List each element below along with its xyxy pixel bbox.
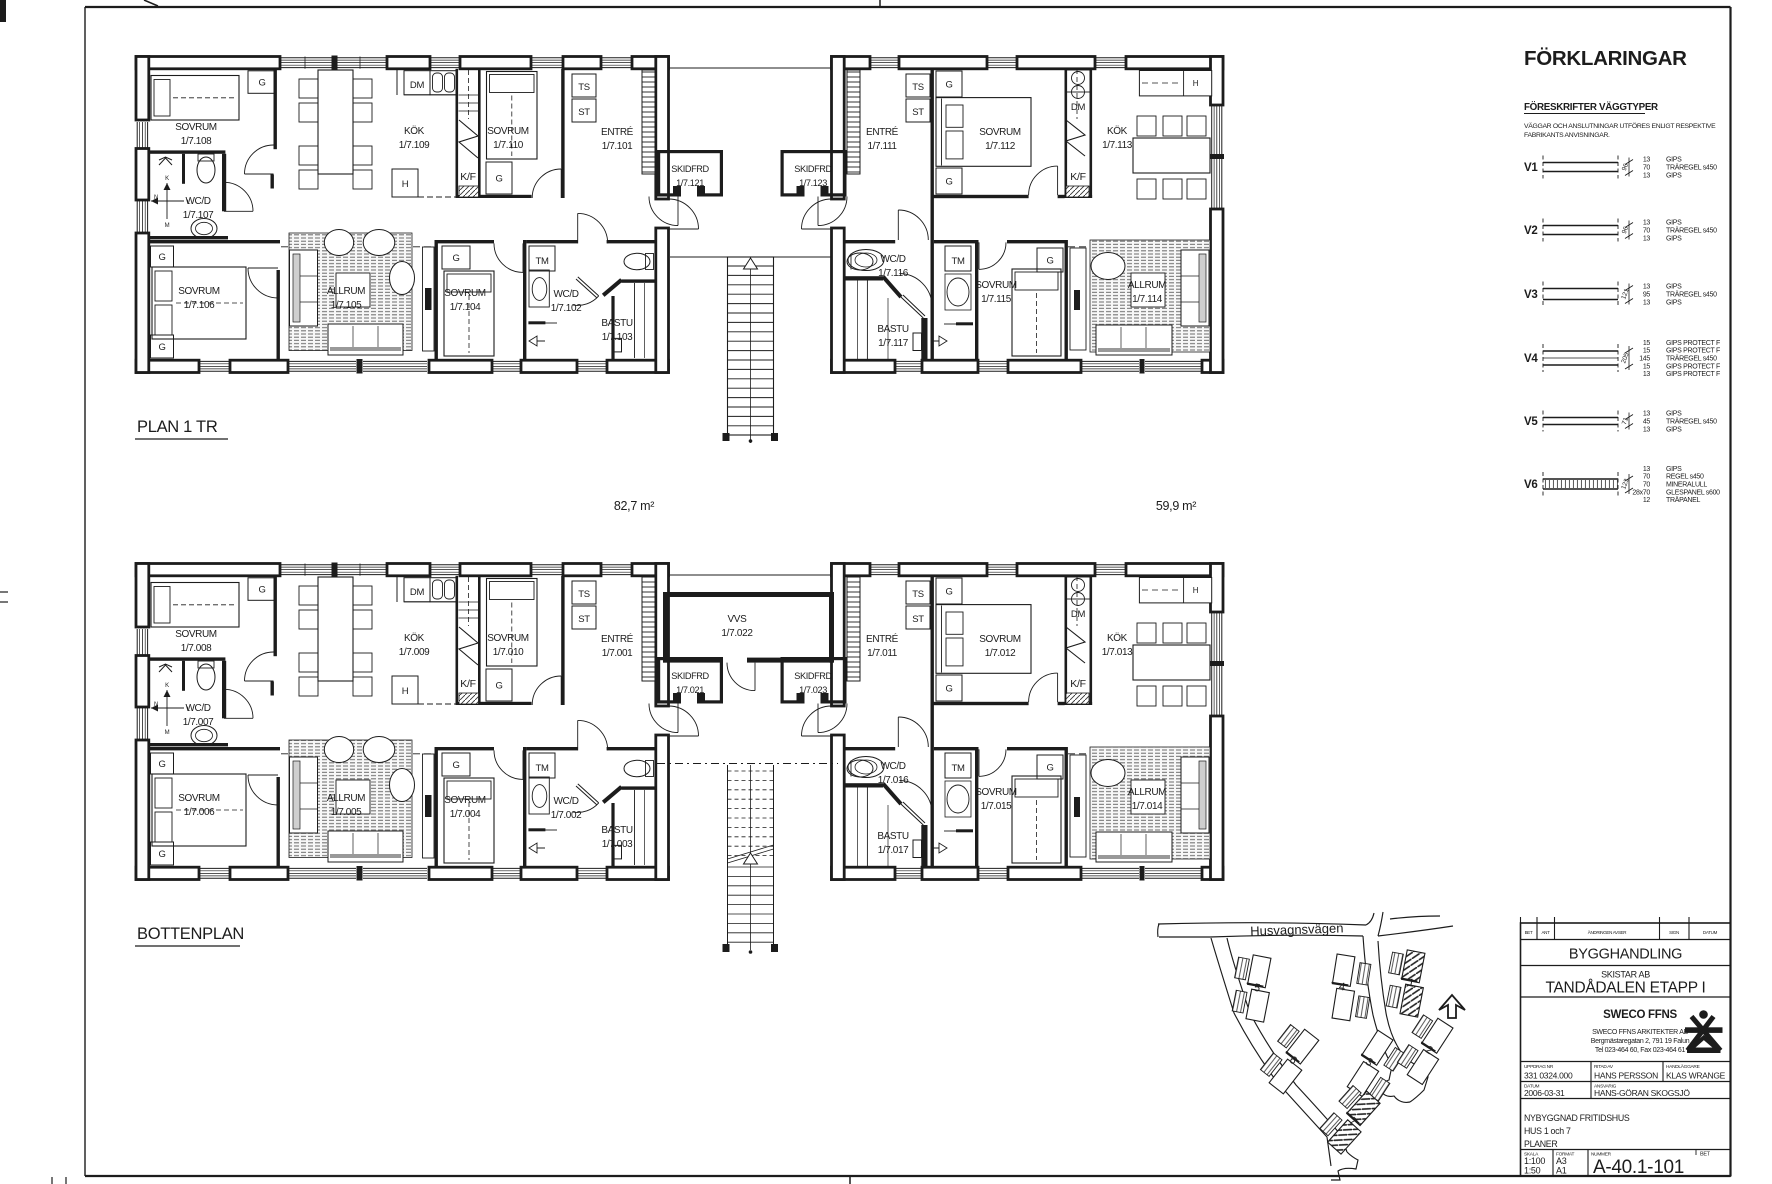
svg-text:1/7.102: 1/7.102 bbox=[551, 303, 582, 314]
svg-text:1/7.023: 1/7.023 bbox=[799, 685, 827, 695]
svg-text:BET: BET bbox=[1525, 930, 1533, 935]
svg-text:SWECO FFNS: SWECO FFNS bbox=[1603, 1009, 1677, 1021]
svg-text:KLAS WRANGE: KLAS WRANGE bbox=[1666, 1071, 1726, 1081]
svg-text:M: M bbox=[165, 223, 170, 229]
svg-text:TS: TS bbox=[578, 589, 590, 600]
svg-text:70: 70 bbox=[1643, 482, 1651, 489]
svg-text:13: 13 bbox=[1643, 299, 1651, 306]
svg-text:1/7.101: 1/7.101 bbox=[602, 141, 633, 152]
svg-text:13: 13 bbox=[1643, 284, 1651, 291]
svg-text:A1: A1 bbox=[1556, 1166, 1567, 1176]
svg-text:1/7.015: 1/7.015 bbox=[981, 801, 1012, 812]
svg-text:H: H bbox=[1193, 79, 1199, 88]
svg-text:VÄGGAR OCH ANSLUTNINGAR UTFÖRE: VÄGGAR OCH ANSLUTNINGAR UTFÖRES ENLIGT R… bbox=[1524, 122, 1716, 130]
svg-text:N: N bbox=[154, 702, 158, 708]
svg-text:Tel 023-464 60, Fax 023-464 61: Tel 023-464 60, Fax 023-464 61 bbox=[1595, 1047, 1686, 1054]
svg-text:G: G bbox=[495, 174, 502, 185]
svg-text:TRÄREGEL s450: TRÄREGEL s450 bbox=[1666, 291, 1717, 299]
svg-text:1/7.017: 1/7.017 bbox=[878, 845, 909, 856]
svg-text:15: 15 bbox=[1643, 340, 1651, 347]
svg-text:70: 70 bbox=[1643, 228, 1651, 235]
svg-text:TM: TM bbox=[535, 256, 549, 267]
svg-text:M: M bbox=[165, 730, 170, 736]
svg-text:HANDLÄGGARE: HANDLÄGGARE bbox=[1666, 1063, 1700, 1070]
svg-text:WC/D: WC/D bbox=[553, 289, 578, 300]
svg-text:1:100: 1:100 bbox=[1524, 1156, 1545, 1166]
svg-text:BYGGHANDLING: BYGGHANDLING bbox=[1569, 947, 1682, 963]
svg-text:13: 13 bbox=[1643, 426, 1651, 433]
svg-text:KÖK: KÖK bbox=[1107, 632, 1128, 644]
svg-text:1/7.117: 1/7.117 bbox=[878, 338, 909, 349]
svg-text:SOVRUM: SOVRUM bbox=[444, 288, 486, 299]
svg-text:1/7.105: 1/7.105 bbox=[331, 300, 362, 311]
svg-text:1/7.112: 1/7.112 bbox=[985, 141, 1016, 152]
svg-text:SOVRUM: SOVRUM bbox=[487, 126, 529, 137]
svg-text:SIGN: SIGN bbox=[1669, 930, 1679, 935]
svg-text:K/F: K/F bbox=[1070, 171, 1085, 183]
svg-text:GIPS: GIPS bbox=[1666, 235, 1682, 242]
svg-text:70: 70 bbox=[1643, 474, 1651, 481]
svg-text:G: G bbox=[158, 342, 165, 353]
svg-text:1/7.111: 1/7.111 bbox=[867, 141, 897, 152]
svg-text:45: 45 bbox=[1643, 419, 1651, 426]
svg-text:1/7.115: 1/7.115 bbox=[981, 294, 1012, 305]
svg-text:ALLRUM: ALLRUM bbox=[1128, 787, 1166, 798]
svg-text:G: G bbox=[945, 177, 952, 188]
svg-text:SOVRUM: SOVRUM bbox=[175, 122, 217, 133]
svg-text:SOVRUM: SOVRUM bbox=[444, 795, 486, 806]
svg-text:GIPS PROTECT F: GIPS PROTECT F bbox=[1666, 363, 1720, 370]
svg-text:DATUM: DATUM bbox=[1703, 930, 1718, 935]
svg-text:DM: DM bbox=[410, 587, 425, 598]
svg-text:KÖK: KÖK bbox=[1107, 125, 1128, 137]
svg-text:TM: TM bbox=[535, 763, 549, 774]
svg-text:ST: ST bbox=[912, 107, 924, 118]
svg-text:V6: V6 bbox=[1524, 479, 1537, 491]
svg-text:N: N bbox=[154, 195, 158, 201]
svg-text:1/7.121: 1/7.121 bbox=[676, 178, 704, 188]
svg-text:GIPS PROTECT F: GIPS PROTECT F bbox=[1666, 371, 1720, 378]
svg-text:1/7.003: 1/7.003 bbox=[602, 839, 633, 850]
svg-text:12: 12 bbox=[1643, 497, 1651, 504]
svg-text:1/7.108: 1/7.108 bbox=[181, 136, 212, 147]
svg-text:1/7.009: 1/7.009 bbox=[399, 647, 430, 658]
svg-text:ALLRUM: ALLRUM bbox=[327, 286, 365, 297]
svg-text:TM: TM bbox=[951, 763, 965, 774]
svg-text:GIPS: GIPS bbox=[1666, 411, 1682, 418]
svg-text:1/7.109: 1/7.109 bbox=[399, 140, 430, 151]
svg-text:1/7.104: 1/7.104 bbox=[450, 302, 481, 313]
svg-text:ÄNDRINGEN AVSER: ÄNDRINGEN AVSER bbox=[1588, 929, 1627, 935]
svg-text:SOVRUM: SOVRUM bbox=[178, 286, 220, 297]
svg-text:G: G bbox=[945, 587, 952, 598]
svg-text:BASTU: BASTU bbox=[601, 825, 633, 836]
svg-text:V3: V3 bbox=[1524, 289, 1537, 301]
svg-text:MINERALULL: MINERALULL bbox=[1666, 482, 1707, 489]
svg-text:K: K bbox=[165, 683, 169, 689]
svg-text:13: 13 bbox=[1643, 235, 1651, 242]
svg-text:13: 13 bbox=[1643, 220, 1651, 227]
svg-text:TS: TS bbox=[912, 82, 924, 93]
svg-text:1/7.011: 1/7.011 bbox=[867, 648, 898, 659]
svg-text:V5: V5 bbox=[1524, 416, 1538, 428]
svg-text:SOVRUM: SOVRUM bbox=[175, 629, 217, 640]
svg-text:1/7.005: 1/7.005 bbox=[331, 807, 362, 818]
svg-text:SOVRUM: SOVRUM bbox=[979, 634, 1021, 645]
svg-text:UPPDRAG NR: UPPDRAG NR bbox=[1524, 1064, 1554, 1070]
svg-text:HUS 1 och 7: HUS 1 och 7 bbox=[1524, 1126, 1571, 1136]
svg-text:1/7.116: 1/7.116 bbox=[878, 268, 909, 279]
svg-text:A3: A3 bbox=[1556, 1156, 1567, 1166]
svg-text:1/7.004: 1/7.004 bbox=[450, 809, 481, 820]
svg-text:WC/D: WC/D bbox=[880, 254, 905, 265]
svg-text:SOVRUM: SOVRUM bbox=[487, 633, 529, 644]
svg-text:1/7.013: 1/7.013 bbox=[1102, 647, 1133, 658]
svg-text:Bergmästaregatan 2, 791 19 Fal: Bergmästaregatan 2, 791 19 Falun bbox=[1591, 1038, 1690, 1045]
svg-text:BASTU: BASTU bbox=[877, 324, 909, 335]
svg-text:DM: DM bbox=[1071, 609, 1086, 620]
svg-text:ST: ST bbox=[578, 614, 590, 625]
svg-text:TS: TS bbox=[912, 589, 924, 600]
svg-text:GIPS: GIPS bbox=[1666, 220, 1682, 227]
svg-text:GIPS: GIPS bbox=[1666, 466, 1682, 473]
svg-text:BOTTENPLAN: BOTTENPLAN bbox=[137, 925, 244, 943]
svg-text:G: G bbox=[158, 849, 165, 860]
svg-text:1/7.103: 1/7.103 bbox=[602, 332, 633, 343]
svg-text:WC/D: WC/D bbox=[553, 796, 578, 807]
svg-text:1/7.123: 1/7.123 bbox=[799, 178, 827, 188]
svg-text:TM: TM bbox=[951, 256, 965, 267]
svg-text:KÖK: KÖK bbox=[404, 125, 425, 137]
svg-text:RITAD AV: RITAD AV bbox=[1594, 1064, 1614, 1070]
svg-text:1/7.114: 1/7.114 bbox=[1132, 294, 1163, 305]
svg-text:28x70: 28x70 bbox=[1632, 489, 1650, 496]
svg-text:SWECO FFNS ARKITEKTER AB: SWECO FFNS ARKITEKTER AB bbox=[1592, 1029, 1689, 1036]
svg-text:G: G bbox=[945, 80, 952, 91]
svg-text:GIPS: GIPS bbox=[1666, 299, 1682, 306]
svg-text:BASTU: BASTU bbox=[601, 318, 633, 329]
svg-text:GIPS PROTECT F: GIPS PROTECT F bbox=[1666, 340, 1720, 347]
svg-text:SKIDFRD: SKIDFRD bbox=[671, 671, 709, 681]
svg-text:82,7 m²: 82,7 m² bbox=[614, 499, 654, 513]
svg-text:1/7.010: 1/7.010 bbox=[493, 647, 524, 658]
svg-text:1/7.106: 1/7.106 bbox=[184, 300, 215, 311]
svg-text:13: 13 bbox=[1643, 466, 1651, 473]
svg-text:BET: BET bbox=[1700, 1152, 1711, 1158]
svg-text:ST: ST bbox=[578, 107, 590, 118]
svg-text:1/7.012: 1/7.012 bbox=[985, 648, 1016, 659]
svg-text:145: 145 bbox=[1639, 356, 1650, 363]
svg-text:15: 15 bbox=[1643, 348, 1651, 355]
svg-text:G: G bbox=[258, 585, 265, 596]
svg-text:TRÄREGEL s450: TRÄREGEL s450 bbox=[1666, 227, 1717, 235]
svg-text:59,9 m²: 59,9 m² bbox=[1156, 499, 1196, 513]
svg-text:G: G bbox=[158, 759, 165, 770]
svg-text:2006-03-31: 2006-03-31 bbox=[1524, 1088, 1565, 1098]
svg-text:FÖRESKRIFTER VÄGGTYPER: FÖRESKRIFTER VÄGGTYPER bbox=[1524, 102, 1658, 113]
svg-text:HANS PERSSON: HANS PERSSON bbox=[1594, 1071, 1658, 1081]
svg-text:13: 13 bbox=[1643, 172, 1651, 179]
svg-text:ALLRUM: ALLRUM bbox=[1128, 280, 1166, 291]
svg-text:1:50: 1:50 bbox=[1524, 1166, 1541, 1176]
svg-text:NYBYGGNAD FRITIDSHUS: NYBYGGNAD FRITIDSHUS bbox=[1524, 1113, 1630, 1123]
svg-text:G: G bbox=[258, 78, 265, 89]
svg-text:1/7.001: 1/7.001 bbox=[602, 648, 633, 659]
svg-text:TRÄPANEL: TRÄPANEL bbox=[1666, 496, 1700, 504]
svg-text:TRÄREGEL s450: TRÄREGEL s450 bbox=[1666, 355, 1717, 363]
svg-text:1/7.002: 1/7.002 bbox=[551, 810, 582, 821]
svg-text:PLANER: PLANER bbox=[1524, 1139, 1557, 1149]
svg-text:ST: ST bbox=[912, 614, 924, 625]
svg-text:A-40.1-101: A-40.1-101 bbox=[1593, 1157, 1684, 1178]
svg-text:13: 13 bbox=[1643, 411, 1651, 418]
svg-text:1/7.006: 1/7.006 bbox=[184, 807, 215, 818]
svg-text:GIPS: GIPS bbox=[1666, 284, 1682, 291]
svg-text:G: G bbox=[452, 253, 459, 264]
svg-text:K: K bbox=[165, 176, 169, 182]
svg-text:FÖRKLARINGAR: FÖRKLARINGAR bbox=[1524, 47, 1687, 70]
svg-text:DM: DM bbox=[1071, 102, 1086, 113]
svg-text:1/7.016: 1/7.016 bbox=[878, 775, 909, 786]
svg-text:V2: V2 bbox=[1524, 225, 1537, 237]
svg-text:331 0324.000: 331 0324.000 bbox=[1524, 1071, 1573, 1081]
svg-text:TRÄREGEL s450: TRÄREGEL s450 bbox=[1666, 164, 1717, 172]
svg-text:GIPS: GIPS bbox=[1666, 157, 1682, 164]
svg-text:REGEL s450: REGEL s450 bbox=[1666, 474, 1704, 481]
svg-text:ENTRÉ: ENTRÉ bbox=[601, 632, 634, 645]
svg-text:GIPS: GIPS bbox=[1666, 426, 1682, 433]
svg-text:13: 13 bbox=[1643, 371, 1651, 378]
svg-text:SKIDFRD: SKIDFRD bbox=[671, 164, 709, 174]
svg-text:V1: V1 bbox=[1524, 162, 1538, 174]
svg-text:1/7.014: 1/7.014 bbox=[1132, 801, 1163, 812]
svg-text:DM: DM bbox=[410, 80, 425, 91]
svg-text:G: G bbox=[1046, 763, 1053, 774]
svg-text:1/7.021: 1/7.021 bbox=[676, 685, 704, 695]
svg-text:G: G bbox=[158, 252, 165, 263]
svg-text:95: 95 bbox=[1643, 292, 1651, 299]
svg-text:1/7.007: 1/7.007 bbox=[183, 717, 214, 728]
svg-text:TRÄREGEL s450: TRÄREGEL s450 bbox=[1666, 418, 1717, 426]
svg-text:H: H bbox=[402, 686, 409, 697]
svg-text:SKIDFRD: SKIDFRD bbox=[794, 164, 832, 174]
svg-text:SKIDFRD: SKIDFRD bbox=[794, 671, 832, 681]
svg-text:ANT: ANT bbox=[1541, 930, 1550, 935]
svg-text:G: G bbox=[1046, 256, 1053, 267]
svg-text:G: G bbox=[945, 684, 952, 695]
svg-text:1/7.113: 1/7.113 bbox=[1102, 140, 1133, 151]
svg-text:SOVRUM: SOVRUM bbox=[979, 127, 1021, 138]
svg-text:HANS-GÖRAN SKOGSJÖ: HANS-GÖRAN SKOGSJÖ bbox=[1594, 1088, 1690, 1098]
svg-text:H: H bbox=[1193, 586, 1199, 595]
svg-text:K/F: K/F bbox=[460, 171, 475, 183]
svg-text:1/7.110: 1/7.110 bbox=[493, 140, 524, 151]
svg-text:ENTRÉ: ENTRÉ bbox=[866, 632, 899, 645]
svg-text:H: H bbox=[402, 179, 409, 190]
svg-text:G: G bbox=[452, 760, 459, 771]
svg-text:SOVRUM: SOVRUM bbox=[975, 280, 1017, 291]
svg-text:BASTU: BASTU bbox=[877, 831, 909, 842]
svg-text:G: G bbox=[495, 681, 502, 692]
svg-text:TANDÅDALEN ETAPP I: TANDÅDALEN ETAPP I bbox=[1546, 980, 1706, 997]
svg-text:KÖK: KÖK bbox=[404, 632, 425, 644]
svg-text:ENTRÉ: ENTRÉ bbox=[866, 125, 899, 138]
svg-text:ENTRÉ: ENTRÉ bbox=[601, 125, 634, 138]
svg-text:SOVRUM: SOVRUM bbox=[975, 787, 1017, 798]
svg-text:13: 13 bbox=[1643, 157, 1651, 164]
svg-text:VVS: VVS bbox=[727, 614, 747, 625]
svg-text:GLESPANEL s600: GLESPANEL s600 bbox=[1666, 489, 1720, 496]
svg-text:FABRIKANTS ANVISNINGAR.: FABRIKANTS ANVISNINGAR. bbox=[1524, 132, 1610, 139]
svg-text:1/7.022: 1/7.022 bbox=[721, 628, 753, 639]
svg-text:SOVRUM: SOVRUM bbox=[178, 793, 220, 804]
svg-text:PLAN 1 TR: PLAN 1 TR bbox=[137, 418, 218, 436]
svg-text:V4: V4 bbox=[1524, 353, 1538, 365]
svg-text:SKISTAR AB: SKISTAR AB bbox=[1601, 970, 1650, 980]
svg-text:K/F: K/F bbox=[460, 678, 475, 690]
svg-text:WC/D: WC/D bbox=[880, 761, 905, 772]
svg-text:WC/D: WC/D bbox=[185, 196, 210, 207]
svg-text:GIPS PROTECT F: GIPS PROTECT F bbox=[1666, 348, 1720, 355]
svg-text:ALLRUM: ALLRUM bbox=[327, 793, 365, 804]
svg-text:WC/D: WC/D bbox=[185, 703, 210, 714]
svg-text:15: 15 bbox=[1643, 363, 1651, 370]
svg-text:1/7.107: 1/7.107 bbox=[183, 210, 214, 221]
svg-text:1/7.008: 1/7.008 bbox=[181, 643, 212, 654]
svg-text:70: 70 bbox=[1643, 165, 1651, 172]
svg-text:GIPS: GIPS bbox=[1666, 172, 1682, 179]
svg-text:K/F: K/F bbox=[1070, 678, 1085, 690]
svg-text:TS: TS bbox=[578, 82, 590, 93]
